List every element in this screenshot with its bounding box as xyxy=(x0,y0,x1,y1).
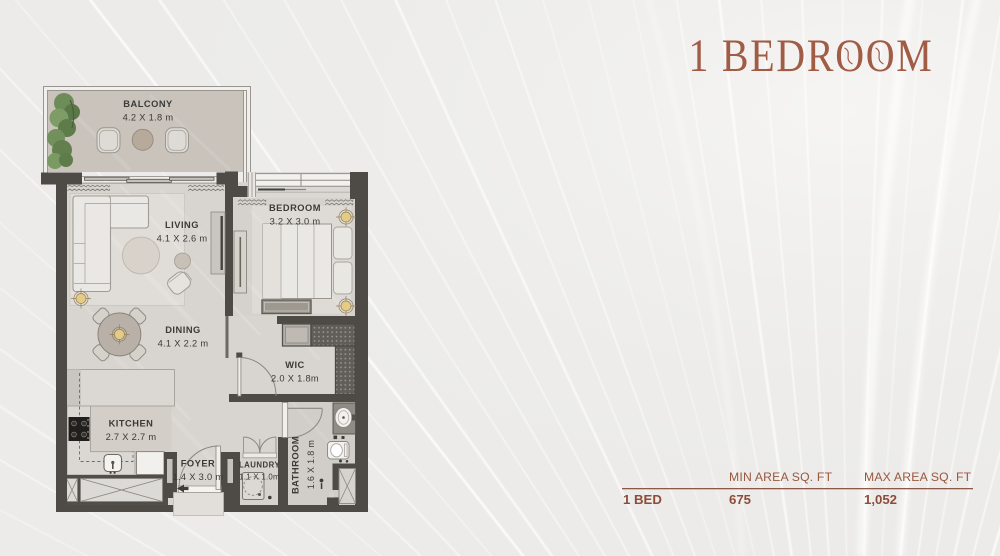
svg-text:2.7 X 2.7 m: 2.7 X 2.7 m xyxy=(106,432,157,442)
svg-text:BATHROOM: BATHROOM xyxy=(291,436,301,494)
svg-text:4.1 X 2.6 m: 4.1 X 2.6 m xyxy=(157,234,208,244)
svg-text:DINING: DINING xyxy=(165,325,201,335)
svg-text:WIC: WIC xyxy=(285,360,305,370)
svg-text:4.1 X 2.2 m: 4.1 X 2.2 m xyxy=(158,339,209,349)
svg-text:1,052: 1,052 xyxy=(864,492,897,507)
svg-text:2.0 X 1.8m: 2.0 X 1.8m xyxy=(271,374,319,384)
svg-text:3.2 X 3.0 m: 3.2 X 3.0 m xyxy=(270,217,321,227)
svg-text:1.1 X 1.0m: 1.1 X 1.0m xyxy=(239,473,280,482)
svg-text:LAUNDRY: LAUNDRY xyxy=(239,461,281,470)
svg-text:BALCONY: BALCONY xyxy=(123,99,173,109)
svg-text:1.6 X 1.8 m: 1.6 X 1.8 m xyxy=(306,440,316,489)
svg-text:1 BED: 1 BED xyxy=(623,492,662,507)
svg-text:1 BEDROOM: 1 BEDROOM xyxy=(689,30,934,82)
svg-text:KITCHEN: KITCHEN xyxy=(109,419,154,429)
svg-text:BEDROOM: BEDROOM xyxy=(269,203,321,213)
svg-text:4.2 X 1.8 m: 4.2 X 1.8 m xyxy=(123,113,174,123)
svg-text:MIN AREA SQ. FT: MIN AREA SQ. FT xyxy=(729,470,833,484)
svg-text:1.4 X 3.0 m: 1.4 X 3.0 m xyxy=(173,472,224,482)
svg-text:LIVING: LIVING xyxy=(165,220,199,230)
svg-text:FOYER: FOYER xyxy=(181,459,216,469)
svg-text:675: 675 xyxy=(729,492,751,507)
svg-text:MAX AREA SQ. FT: MAX AREA SQ. FT xyxy=(864,470,972,484)
